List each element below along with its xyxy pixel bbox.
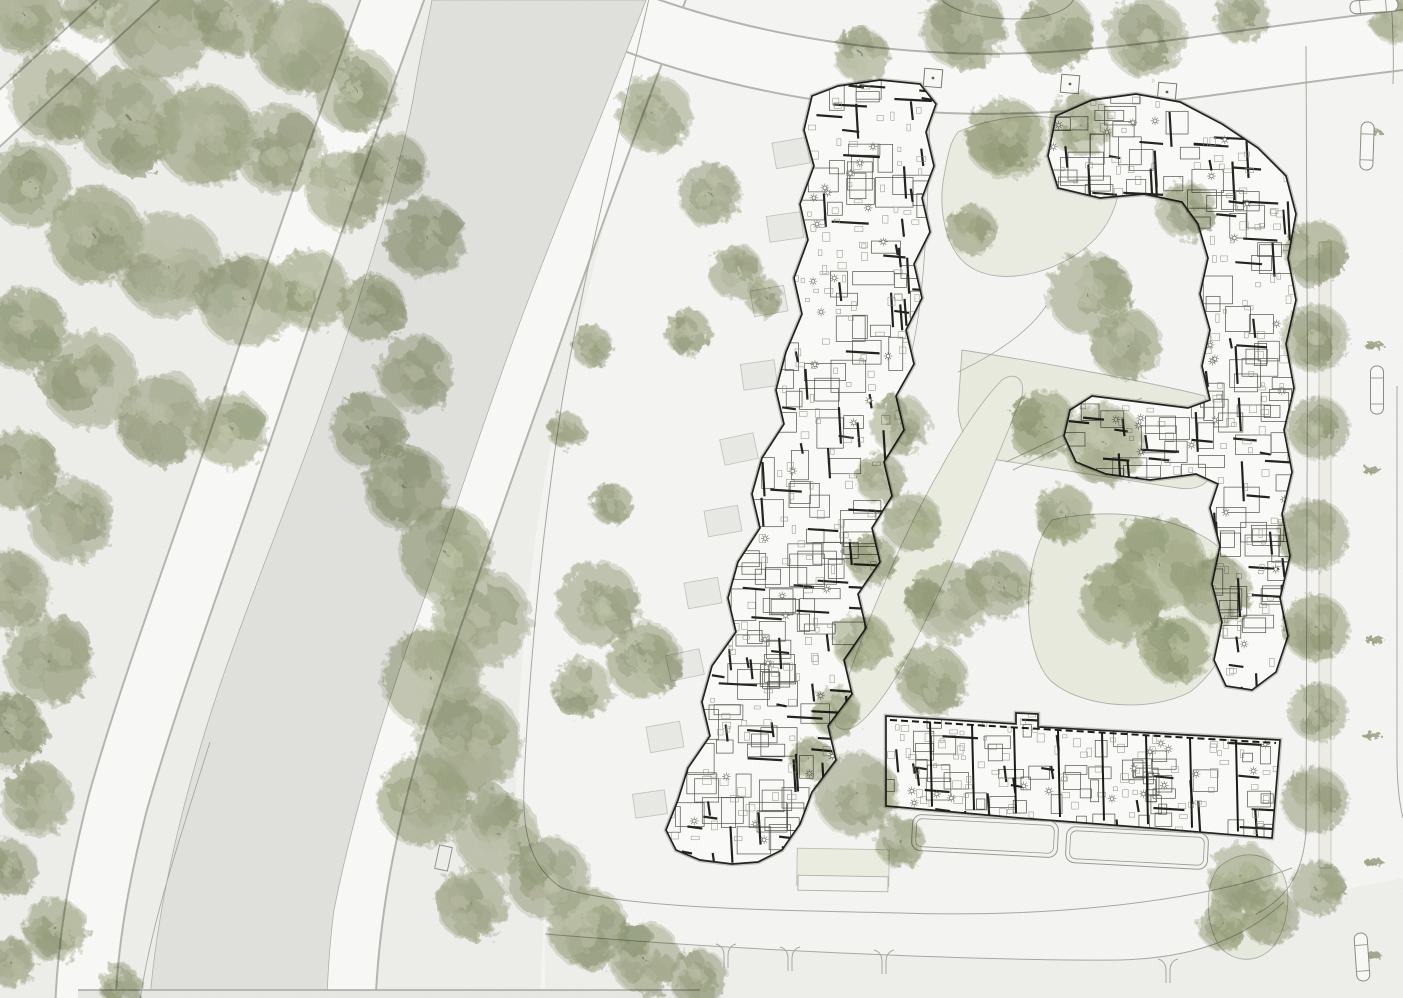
paper-grain-overlay bbox=[0, 0, 1403, 998]
site-plan-canvas bbox=[0, 0, 1403, 998]
site-plan bbox=[0, 0, 1403, 998]
